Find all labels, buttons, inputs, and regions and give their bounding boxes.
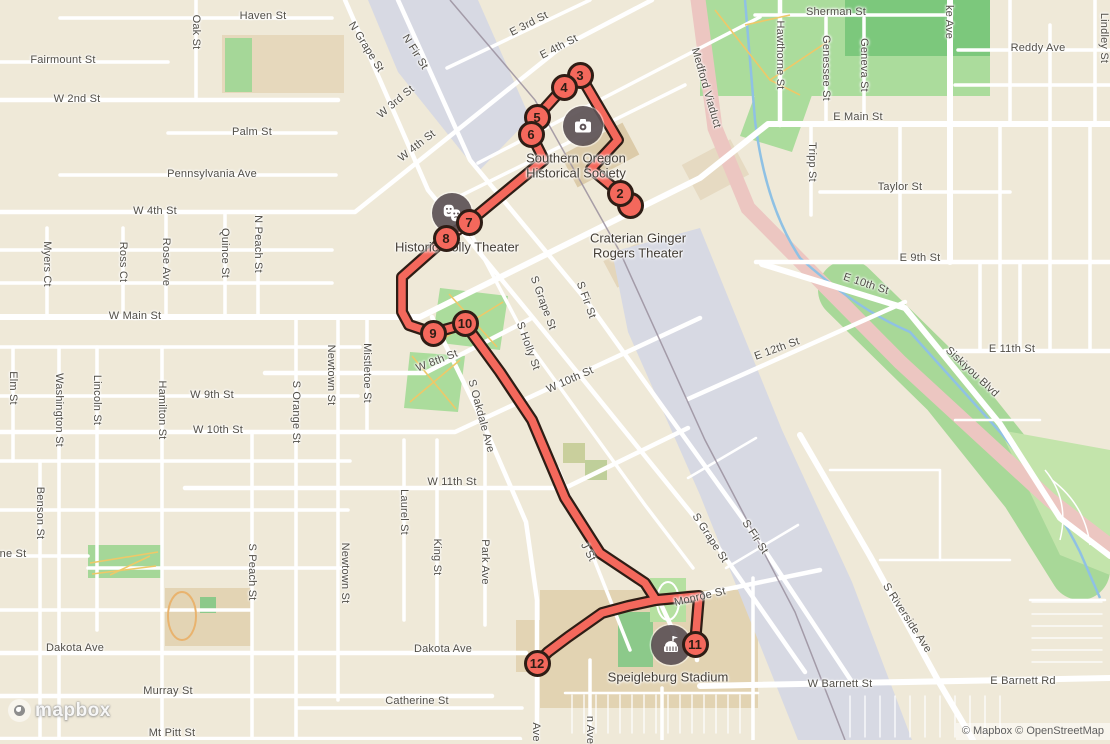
street-label: Park Ave	[479, 539, 491, 584]
street-label: Laurel St	[398, 489, 410, 535]
street-label: N Peach St	[252, 215, 264, 273]
street-label: King St	[431, 539, 443, 576]
street-label: Mistletoe St	[361, 343, 373, 403]
route-stop-marker-6[interactable]: 6	[518, 121, 545, 148]
street-label: Palm St	[232, 126, 272, 138]
street-label: Hawthorne St	[774, 20, 786, 89]
street-label: Pennsylvania Ave	[167, 168, 257, 180]
camera-icon[interactable]	[563, 106, 603, 146]
route-stop-marker-4[interactable]: 4	[551, 74, 578, 101]
street-label: Benson St	[34, 487, 46, 540]
craterian-ginger-rogers-theater-label: Craterian GingerRogers Theater	[590, 231, 686, 262]
street-label: W 11th St	[427, 476, 476, 488]
street-label: E Main St	[833, 111, 883, 123]
route-stop-marker-10[interactable]: 10	[452, 310, 479, 337]
street-label: W 9th St	[190, 389, 234, 401]
street-label: S Orange St	[290, 381, 302, 444]
map-attribution[interactable]: © Mapbox © OpenStreetMap	[956, 723, 1110, 740]
street-label: Dakota Ave	[414, 643, 472, 655]
mapbox-logo-icon	[8, 699, 31, 722]
route-stop-marker-8[interactable]: 8	[433, 225, 460, 252]
route-stop-marker-7[interactable]: 7	[456, 209, 483, 236]
route-stop-marker-12[interactable]: 12	[524, 650, 551, 677]
street-label: Ave	[530, 722, 542, 741]
street-label: S Peach St	[246, 543, 258, 600]
street-label: Ross Ct	[117, 242, 129, 283]
route-stop-marker-9[interactable]: 9	[420, 320, 447, 347]
street-label: Hamilton St	[156, 380, 168, 439]
speigleburg-stadium-label: Speigleburg Stadium	[608, 669, 729, 684]
street-label: Genessee St	[820, 35, 832, 101]
street-label: Oak St	[190, 15, 202, 50]
street-label: Fairmount St	[30, 54, 95, 66]
street-label: Washington St	[53, 373, 65, 447]
map-base-graphics	[0, 0, 1110, 740]
street-label: Myers Ct	[41, 241, 53, 287]
street-label: Newtown St	[339, 543, 351, 604]
southern-oregon-historical-society-label: Southern OregonHistorical Society	[526, 151, 626, 182]
street-label: Murray St	[143, 685, 192, 697]
street-label: Elm St	[7, 371, 19, 405]
street-label: Mt Pitt St	[149, 727, 196, 739]
street-label: W Barnett St	[808, 678, 873, 690]
street-label: Dakota Ave	[46, 642, 104, 654]
street-label: W 10th St	[193, 424, 243, 436]
street-label: E 9th St	[900, 252, 941, 264]
street-label: ke Ave	[943, 5, 955, 39]
street-label: Quince St	[219, 228, 231, 278]
street-label: Catherine St	[385, 695, 449, 707]
street-label: W Main St	[109, 310, 162, 322]
street-label: W 4th St	[133, 205, 177, 217]
street-label: Haven St	[240, 10, 287, 22]
street-label: E Barnett Rd	[990, 675, 1055, 687]
street-label: E 11th St	[989, 343, 1035, 355]
street-label: Sherman St	[806, 6, 866, 18]
street-label: W 2nd St	[54, 93, 101, 105]
map-canvas[interactable]: Haven StSherman Stke AveReddy AveLindley…	[0, 0, 1110, 740]
route-stop-marker-2[interactable]: 2	[607, 180, 634, 207]
street-label: Reddy Ave	[1011, 42, 1066, 54]
mapbox-logo-text: mapbox	[35, 700, 111, 722]
mapbox-logo[interactable]: mapbox	[8, 699, 111, 722]
street-label: Newtown St	[325, 345, 337, 406]
route-stop-marker-11[interactable]: 11	[682, 631, 709, 658]
street-label: ne St	[0, 548, 26, 560]
street-label: Tripp St	[806, 142, 818, 182]
street-label: Lincoln St	[91, 375, 103, 425]
street-label: Taylor St	[878, 181, 923, 193]
street-label: Geneva St	[858, 38, 870, 92]
street-label: Lindley St	[1098, 13, 1110, 63]
street-label: Rose Ave	[160, 238, 172, 286]
